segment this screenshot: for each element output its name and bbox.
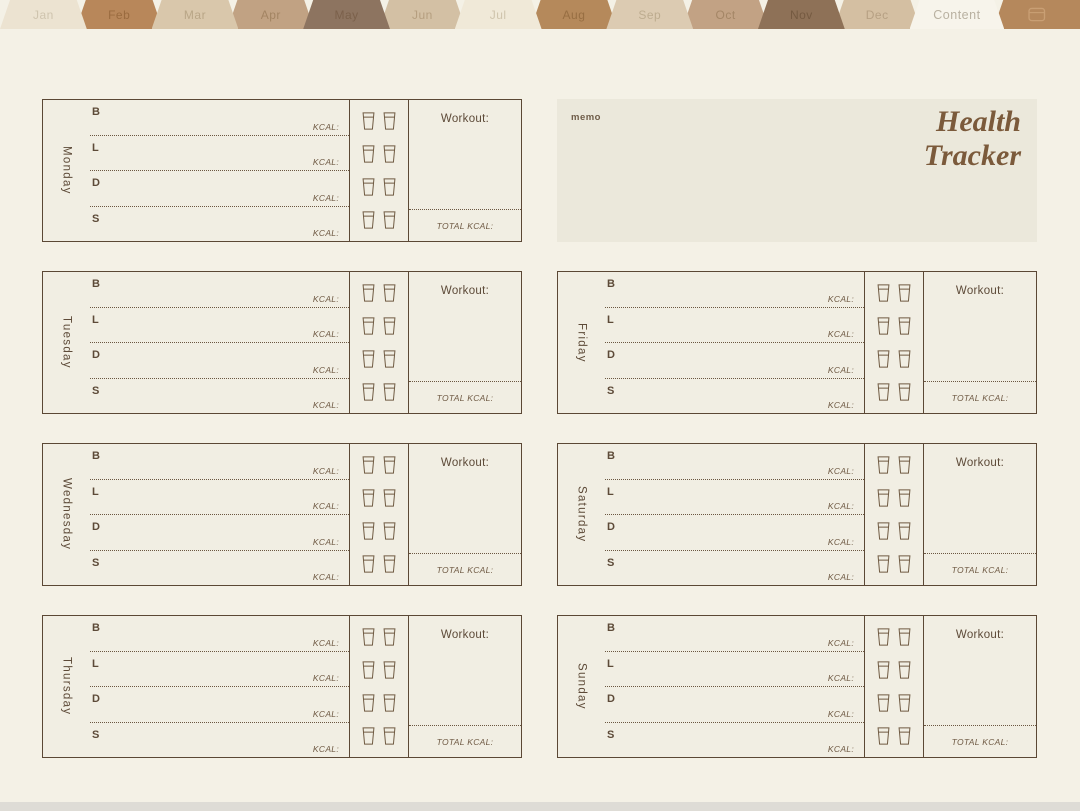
water-cup-icon[interactable] bbox=[361, 726, 376, 746]
water-cup-icon[interactable] bbox=[361, 455, 376, 475]
day-name-column: Tuesday bbox=[43, 272, 90, 413]
day-card-sunday: Sunday BKCAL:LKCAL:DKCAL:SKCAL: Workout:… bbox=[557, 615, 1037, 758]
workout-section[interactable]: Workout: TOTAL KCAL: bbox=[409, 616, 521, 757]
meal-letter: L bbox=[92, 486, 99, 498]
meal-letter: L bbox=[607, 658, 614, 670]
water-cup-icon[interactable] bbox=[897, 349, 912, 369]
workout-label: Workout: bbox=[409, 457, 521, 469]
tab-label: Content bbox=[933, 8, 980, 22]
meal-row-d[interactable]: DKCAL: bbox=[605, 343, 864, 379]
meal-letter: L bbox=[92, 142, 99, 154]
meal-row-s[interactable]: SKCAL: bbox=[90, 379, 349, 414]
kcal-label: KCAL: bbox=[828, 744, 854, 754]
meal-row-s[interactable]: SKCAL: bbox=[605, 551, 864, 586]
water-cup-icon[interactable] bbox=[897, 726, 912, 746]
meal-letter: S bbox=[607, 729, 614, 741]
water-cup-icon[interactable] bbox=[897, 283, 912, 303]
meal-letter: S bbox=[92, 213, 99, 225]
tracker-grid: memo Health Tracker Monday BKCAL:LKCAL:D… bbox=[42, 99, 1037, 758]
meal-row-b[interactable]: BKCAL: bbox=[90, 100, 349, 136]
meal-letter: S bbox=[607, 557, 614, 569]
meal-row-l[interactable]: LKCAL: bbox=[90, 308, 349, 344]
kcal-label: KCAL: bbox=[313, 400, 339, 410]
kcal-label: KCAL: bbox=[313, 193, 339, 203]
meal-letter: L bbox=[607, 486, 614, 498]
day-name-column: Wednesday bbox=[43, 444, 90, 585]
tab-label: May bbox=[335, 8, 359, 22]
water-cup-icon[interactable] bbox=[382, 111, 397, 131]
water-cup-icon[interactable] bbox=[361, 660, 376, 680]
meal-row-s[interactable]: SKCAL: bbox=[90, 551, 349, 586]
day-name-column: Monday bbox=[43, 100, 90, 241]
water-cup-icon[interactable] bbox=[382, 554, 397, 574]
meal-letter: D bbox=[607, 693, 615, 705]
window-bottom-edge bbox=[0, 802, 1080, 811]
meal-letter: S bbox=[92, 557, 99, 569]
water-cup-icon[interactable] bbox=[876, 660, 891, 680]
meal-row-d[interactable]: DKCAL: bbox=[90, 343, 349, 379]
water-cup-icon[interactable] bbox=[876, 627, 891, 647]
water-cup-icon[interactable] bbox=[382, 283, 397, 303]
day-name-column: Sunday bbox=[558, 616, 605, 757]
meal-row-b[interactable]: BKCAL: bbox=[605, 272, 864, 308]
water-cup-icon[interactable] bbox=[361, 144, 376, 164]
workout-label: Workout: bbox=[924, 457, 1036, 469]
kcal-label: KCAL: bbox=[313, 228, 339, 238]
kcal-label: KCAL: bbox=[828, 537, 854, 547]
page-title-line1: Health bbox=[924, 105, 1021, 139]
water-cup-icon[interactable] bbox=[361, 382, 376, 402]
health-tracker-page: JanFebMarAprMayJunJulAugSepOctNovDecCont… bbox=[0, 0, 1080, 811]
water-tracker bbox=[349, 272, 409, 413]
water-cup-icon[interactable] bbox=[897, 554, 912, 574]
kcal-label: KCAL: bbox=[828, 400, 854, 410]
water-cup-icon[interactable] bbox=[382, 316, 397, 336]
water-cup-icon[interactable] bbox=[876, 521, 891, 541]
total-kcal-label: TOTAL KCAL: bbox=[437, 221, 494, 231]
meal-row-l[interactable]: LKCAL: bbox=[605, 480, 864, 516]
tab-jun[interactable]: Jun bbox=[379, 0, 466, 29]
workout-section[interactable]: Workout: TOTAL KCAL: bbox=[924, 272, 1036, 413]
water-cup-icon[interactable] bbox=[897, 316, 912, 336]
kcal-label: KCAL: bbox=[828, 572, 854, 582]
meals-section: BKCAL:LKCAL:DKCAL:SKCAL: bbox=[90, 444, 349, 585]
meal-row-d[interactable]: DKCAL: bbox=[605, 515, 864, 551]
meal-row-d[interactable]: DKCAL: bbox=[90, 687, 349, 723]
memo-card[interactable]: memo Health Tracker bbox=[557, 99, 1037, 242]
calendar-icon bbox=[1028, 7, 1046, 22]
meal-row-s[interactable]: SKCAL: bbox=[90, 207, 349, 242]
tab-label: Dec bbox=[866, 8, 889, 22]
tab-apr[interactable]: Apr bbox=[227, 0, 314, 29]
meal-letter: S bbox=[607, 385, 614, 397]
water-cup-icon[interactable] bbox=[361, 316, 376, 336]
water-cup-icon[interactable] bbox=[382, 210, 397, 230]
workout-label: Workout: bbox=[409, 629, 521, 641]
workout-section[interactable]: Workout: TOTAL KCAL: bbox=[409, 444, 521, 585]
month-tabbar: JanFebMarAprMayJunJulAugSepOctNovDecCont… bbox=[0, 0, 1080, 29]
water-cup-icon[interactable] bbox=[897, 693, 912, 713]
meal-row-d[interactable]: DKCAL: bbox=[90, 515, 349, 551]
water-cup-icon[interactable] bbox=[897, 521, 912, 541]
workout-section[interactable]: Workout: TOTAL KCAL: bbox=[924, 616, 1036, 757]
tab-bookmark[interactable] bbox=[993, 0, 1080, 29]
total-kcal-label: TOTAL KCAL: bbox=[952, 737, 1009, 747]
day-name-column: Thursday bbox=[43, 616, 90, 757]
meals-section: BKCAL:LKCAL:DKCAL:SKCAL: bbox=[605, 272, 864, 413]
total-kcal-label: TOTAL KCAL: bbox=[952, 565, 1009, 575]
meal-row-l[interactable]: LKCAL: bbox=[90, 480, 349, 516]
water-cup-icon[interactable] bbox=[876, 554, 891, 574]
water-cup-icon[interactable] bbox=[876, 283, 891, 303]
meals-section: BKCAL:LKCAL:DKCAL:SKCAL: bbox=[90, 100, 349, 241]
tab-oct[interactable]: Oct bbox=[682, 0, 769, 29]
kcal-label: KCAL: bbox=[313, 294, 339, 304]
workout-section[interactable]: Workout: TOTAL KCAL: bbox=[409, 100, 521, 241]
tab-sep[interactable]: Sep bbox=[606, 0, 693, 29]
kcal-label: KCAL: bbox=[828, 329, 854, 339]
total-kcal-section[interactable]: TOTAL KCAL: bbox=[924, 725, 1036, 757]
tab-label: Feb bbox=[108, 8, 130, 22]
water-cup-icon[interactable] bbox=[876, 726, 891, 746]
water-cup-icon[interactable] bbox=[897, 455, 912, 475]
meal-row-d[interactable]: DKCAL: bbox=[90, 171, 349, 207]
water-cup-icon[interactable] bbox=[382, 144, 397, 164]
meal-row-b[interactable]: BKCAL: bbox=[90, 272, 349, 308]
page-title: Health Tracker bbox=[924, 105, 1021, 172]
water-cup-icon[interactable] bbox=[382, 693, 397, 713]
total-kcal-section[interactable]: TOTAL KCAL: bbox=[409, 209, 521, 241]
meals-section: BKCAL:LKCAL:DKCAL:SKCAL: bbox=[90, 272, 349, 413]
kcal-label: KCAL: bbox=[828, 466, 854, 476]
water-cup-icon[interactable] bbox=[897, 382, 912, 402]
water-cup-icon[interactable] bbox=[361, 488, 376, 508]
meal-letter: L bbox=[607, 314, 614, 326]
tab-label: Aug bbox=[563, 8, 586, 22]
workout-label: Workout: bbox=[924, 285, 1036, 297]
meal-row-l[interactable]: LKCAL: bbox=[90, 652, 349, 688]
meal-letter: D bbox=[92, 693, 100, 705]
day-name-column: Friday bbox=[558, 272, 605, 413]
kcal-label: KCAL: bbox=[313, 501, 339, 511]
day-name-label: Friday bbox=[576, 323, 588, 363]
day-card-thursday: Thursday BKCAL:LKCAL:DKCAL:SKCAL: Workou… bbox=[42, 615, 522, 758]
kcal-label: KCAL: bbox=[313, 329, 339, 339]
water-cup-icon[interactable] bbox=[382, 349, 397, 369]
kcal-label: KCAL: bbox=[828, 673, 854, 683]
tab-may[interactable]: May bbox=[303, 0, 390, 29]
day-card-tuesday: Tuesday BKCAL:LKCAL:DKCAL:SKCAL: Workout… bbox=[42, 271, 522, 414]
tab-label: Sep bbox=[638, 8, 661, 22]
water-cup-icon[interactable] bbox=[876, 349, 891, 369]
meal-letter: B bbox=[92, 278, 100, 290]
meal-row-s[interactable]: SKCAL: bbox=[90, 723, 349, 758]
meal-row-l[interactable]: LKCAL: bbox=[90, 136, 349, 172]
meal-row-s[interactable]: SKCAL: bbox=[605, 379, 864, 414]
water-cup-icon[interactable] bbox=[897, 627, 912, 647]
meal-row-s[interactable]: SKCAL: bbox=[605, 723, 864, 758]
water-tracker bbox=[349, 444, 409, 585]
meal-letter: B bbox=[607, 622, 615, 634]
water-cup-icon[interactable] bbox=[382, 177, 397, 197]
water-cup-icon[interactable] bbox=[361, 349, 376, 369]
tab-label: Nov bbox=[790, 8, 813, 22]
kcal-label: KCAL: bbox=[828, 365, 854, 375]
meal-letter: S bbox=[92, 729, 99, 741]
water-cup-icon[interactable] bbox=[361, 693, 376, 713]
kcal-label: KCAL: bbox=[313, 537, 339, 547]
workout-label: Workout: bbox=[924, 629, 1036, 641]
workout-label: Workout: bbox=[409, 285, 521, 297]
kcal-label: KCAL: bbox=[313, 709, 339, 719]
water-cup-icon[interactable] bbox=[897, 660, 912, 680]
water-cup-icon[interactable] bbox=[382, 455, 397, 475]
total-kcal-label: TOTAL KCAL: bbox=[437, 565, 494, 575]
total-kcal-section[interactable]: TOTAL KCAL: bbox=[924, 381, 1036, 413]
day-name-column: Saturday bbox=[558, 444, 605, 585]
day-card-friday: Friday BKCAL:LKCAL:DKCAL:SKCAL: Workout:… bbox=[557, 271, 1037, 414]
meal-letter: B bbox=[92, 106, 100, 118]
meal-letter: D bbox=[92, 521, 100, 533]
total-kcal-section[interactable]: TOTAL KCAL: bbox=[409, 725, 521, 757]
tab-feb[interactable]: Feb bbox=[76, 0, 163, 29]
tab-label: Jun bbox=[412, 8, 433, 22]
tab-mar[interactable]: Mar bbox=[152, 0, 239, 29]
kcal-label: KCAL: bbox=[313, 122, 339, 132]
page-title-line2: Tracker bbox=[924, 139, 1021, 173]
day-name-label: Saturday bbox=[576, 486, 588, 542]
water-cup-icon[interactable] bbox=[382, 382, 397, 402]
water-cup-icon[interactable] bbox=[361, 283, 376, 303]
meal-letter: D bbox=[607, 521, 615, 533]
meal-letter: L bbox=[92, 658, 99, 670]
water-tracker bbox=[349, 616, 409, 757]
water-cup-icon[interactable] bbox=[876, 455, 891, 475]
meals-section: BKCAL:LKCAL:DKCAL:SKCAL: bbox=[605, 616, 864, 757]
water-cup-icon[interactable] bbox=[876, 488, 891, 508]
water-cup-icon[interactable] bbox=[897, 488, 912, 508]
day-card-wednesday: Wednesday BKCAL:LKCAL:DKCAL:SKCAL: Worko… bbox=[42, 443, 522, 586]
kcal-label: KCAL: bbox=[828, 709, 854, 719]
water-cup-icon[interactable] bbox=[382, 521, 397, 541]
total-kcal-label: TOTAL KCAL: bbox=[437, 393, 494, 403]
day-name-label: Sunday bbox=[576, 663, 588, 710]
kcal-label: KCAL: bbox=[313, 157, 339, 167]
water-cup-icon[interactable] bbox=[876, 382, 891, 402]
water-cup-icon[interactable] bbox=[382, 660, 397, 680]
kcal-label: KCAL: bbox=[313, 572, 339, 582]
meal-row-l[interactable]: LKCAL: bbox=[605, 308, 864, 344]
total-kcal-section[interactable]: TOTAL KCAL: bbox=[409, 553, 521, 585]
meal-letter: S bbox=[92, 385, 99, 397]
water-cup-icon[interactable] bbox=[361, 177, 376, 197]
kcal-label: KCAL: bbox=[828, 638, 854, 648]
meal-letter: B bbox=[92, 622, 100, 634]
meal-letter: D bbox=[92, 177, 100, 189]
day-card-saturday: Saturday BKCAL:LKCAL:DKCAL:SKCAL: Workou… bbox=[557, 443, 1037, 586]
kcal-label: KCAL: bbox=[313, 466, 339, 476]
tab-nov[interactable]: Nov bbox=[758, 0, 845, 29]
meal-letter: D bbox=[607, 349, 615, 361]
memo-label: memo bbox=[571, 112, 601, 123]
water-cup-icon[interactable] bbox=[361, 210, 376, 230]
meal-row-d[interactable]: DKCAL: bbox=[605, 687, 864, 723]
water-cup-icon[interactable] bbox=[361, 554, 376, 574]
water-cup-icon[interactable] bbox=[876, 316, 891, 336]
kcal-label: KCAL: bbox=[313, 365, 339, 375]
meal-row-b[interactable]: BKCAL: bbox=[605, 444, 864, 480]
water-cup-icon[interactable] bbox=[361, 627, 376, 647]
day-name-label: Monday bbox=[61, 146, 73, 195]
day-name-label: Tuesday bbox=[61, 316, 73, 369]
tab-dec[interactable]: Dec bbox=[834, 0, 921, 29]
tab-jan[interactable]: Jan bbox=[0, 0, 87, 29]
meal-letter: D bbox=[92, 349, 100, 361]
workout-section[interactable]: Workout: TOTAL KCAL: bbox=[409, 272, 521, 413]
water-cup-icon[interactable] bbox=[382, 726, 397, 746]
tab-label: Jul bbox=[490, 8, 507, 22]
meal-letter: L bbox=[92, 314, 99, 326]
water-tracker bbox=[864, 616, 924, 757]
water-cup-icon[interactable] bbox=[382, 488, 397, 508]
kcal-label: KCAL: bbox=[313, 744, 339, 754]
workout-section[interactable]: Workout: TOTAL KCAL: bbox=[924, 444, 1036, 585]
meal-row-l[interactable]: LKCAL: bbox=[605, 652, 864, 688]
total-kcal-section[interactable]: TOTAL KCAL: bbox=[924, 553, 1036, 585]
day-name-label: Wednesday bbox=[61, 478, 73, 550]
kcal-label: KCAL: bbox=[828, 294, 854, 304]
meal-row-b[interactable]: BKCAL: bbox=[90, 616, 349, 652]
water-cup-icon[interactable] bbox=[876, 693, 891, 713]
tab-label: Oct bbox=[715, 8, 735, 22]
tab-jul[interactable]: Jul bbox=[455, 0, 542, 29]
meal-letter: B bbox=[92, 450, 100, 462]
total-kcal-label: TOTAL KCAL: bbox=[437, 737, 494, 747]
total-kcal-section[interactable]: TOTAL KCAL: bbox=[409, 381, 521, 413]
tab-content[interactable]: Content bbox=[910, 0, 1005, 29]
water-tracker bbox=[864, 444, 924, 585]
day-card-monday: Monday BKCAL:LKCAL:DKCAL:SKCAL: Workout:… bbox=[42, 99, 522, 242]
meal-letter: B bbox=[607, 450, 615, 462]
water-cup-icon[interactable] bbox=[382, 627, 397, 647]
meals-section: BKCAL:LKCAL:DKCAL:SKCAL: bbox=[90, 616, 349, 757]
water-tracker bbox=[864, 272, 924, 413]
day-name-label: Thursday bbox=[61, 657, 73, 715]
tab-label: Apr bbox=[261, 8, 281, 22]
meals-section: BKCAL:LKCAL:DKCAL:SKCAL: bbox=[605, 444, 864, 585]
meal-row-b[interactable]: BKCAL: bbox=[90, 444, 349, 480]
tab-label: Mar bbox=[184, 8, 206, 22]
water-tracker bbox=[349, 100, 409, 241]
water-cup-icon[interactable] bbox=[361, 111, 376, 131]
kcal-label: KCAL: bbox=[313, 638, 339, 648]
kcal-label: KCAL: bbox=[313, 673, 339, 683]
tab-label: Jan bbox=[33, 8, 54, 22]
total-kcal-label: TOTAL KCAL: bbox=[952, 393, 1009, 403]
water-cup-icon[interactable] bbox=[361, 521, 376, 541]
tab-aug[interactable]: Aug bbox=[531, 0, 618, 29]
workout-label: Workout: bbox=[409, 113, 521, 125]
kcal-label: KCAL: bbox=[828, 501, 854, 511]
meal-letter: B bbox=[607, 278, 615, 290]
meal-row-b[interactable]: BKCAL: bbox=[605, 616, 864, 652]
